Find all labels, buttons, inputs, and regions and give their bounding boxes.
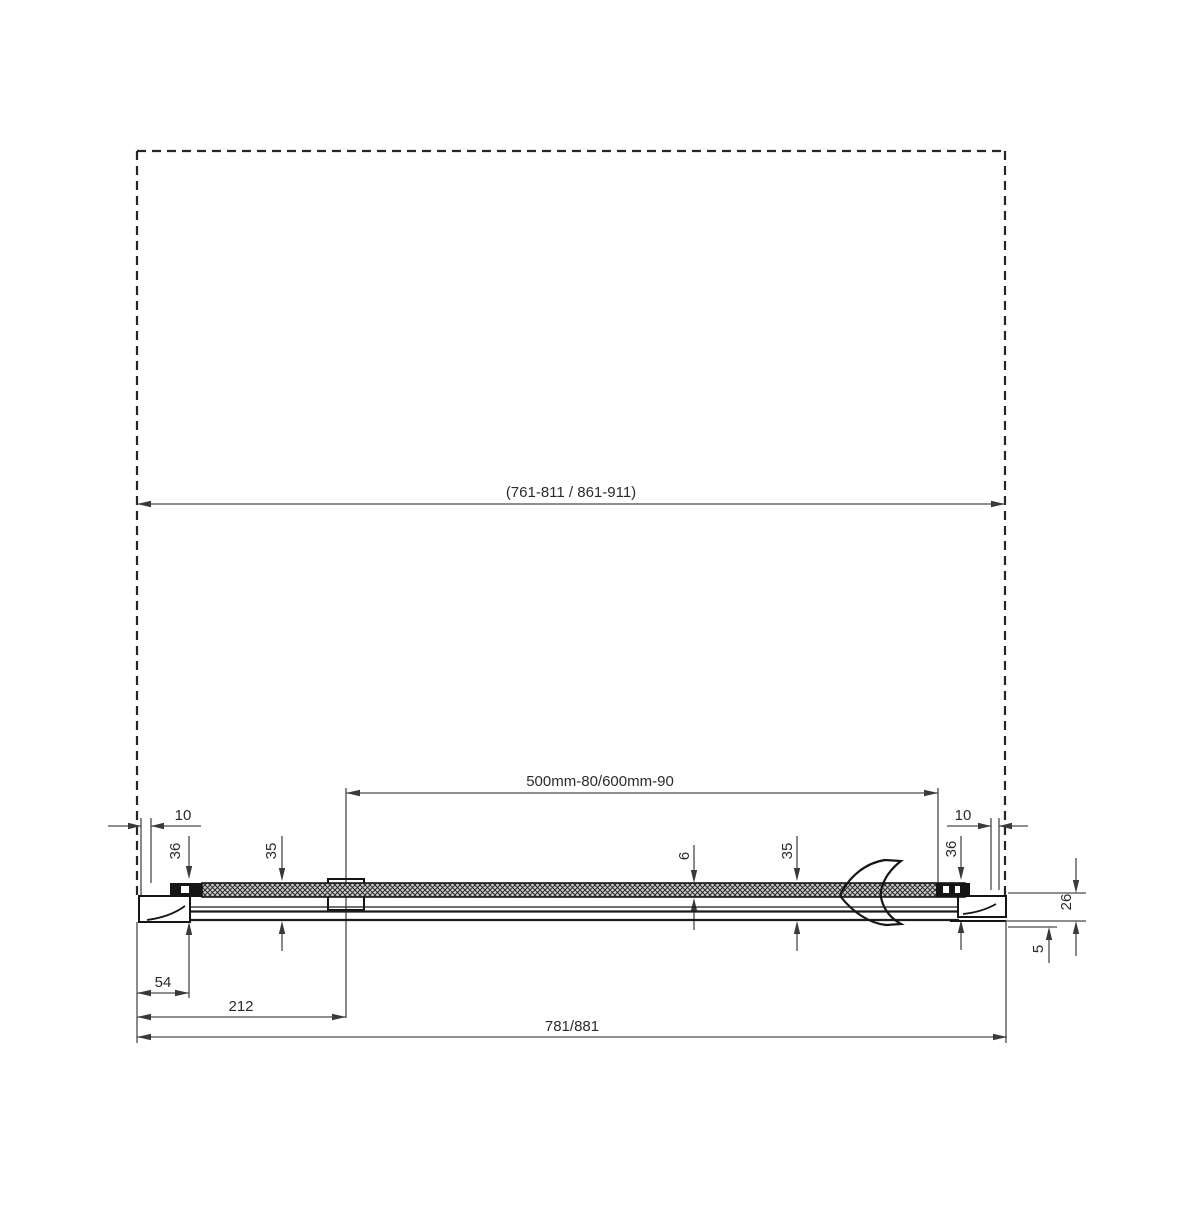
dim-door-depth-right-label: 35: [779, 843, 796, 860]
technical-drawing: (761-811 / 861-911) 500mm-80/600mm-90 10…: [0, 0, 1200, 1200]
glass-clamp-right: [936, 883, 970, 897]
dimension-rail-lip: 5: [1008, 927, 1057, 963]
dim-offset-54-label: 54: [155, 974, 172, 991]
dim-door-glass-label: 500mm-80/600mm-90: [526, 773, 674, 790]
bottom-rail: [190, 907, 959, 920]
drawing-canvas: (761-811 / 861-911) 500mm-80/600mm-90 10…: [0, 0, 1200, 1200]
dim-wall-profile-right-label: 36: [943, 841, 960, 858]
dim-rail-depth-label: 26: [1058, 894, 1075, 911]
dim-width-range-label: (761-811 / 861-911): [506, 484, 636, 501]
glass-panel: [202, 883, 965, 897]
dim-door-depth-left-label: 35: [263, 843, 280, 860]
dimension-offset-54: 54: [137, 974, 189, 996]
dimension-width-range: (761-811 / 861-911): [137, 484, 1005, 507]
dim-wall-profile-left-label: 36: [167, 843, 184, 860]
dimension-wall-gap-left: 10: [108, 807, 201, 896]
dimension-total-width: 781/881: [137, 921, 1007, 1043]
dim-total-width-label: 781/881: [545, 1018, 599, 1035]
dimension-offset-212: 212: [137, 998, 346, 1020]
wall-profile-right: [936, 883, 1006, 921]
dim-rail-lip-label: 5: [1030, 945, 1047, 953]
wall-profile-left: [139, 883, 202, 922]
dim-wall-gap-left-label: 10: [175, 807, 192, 824]
dim-offset-212-label: 212: [228, 998, 253, 1015]
dim-wall-gap-right-label: 10: [955, 807, 972, 824]
dim-glass-thickness-label: 6: [676, 852, 693, 860]
